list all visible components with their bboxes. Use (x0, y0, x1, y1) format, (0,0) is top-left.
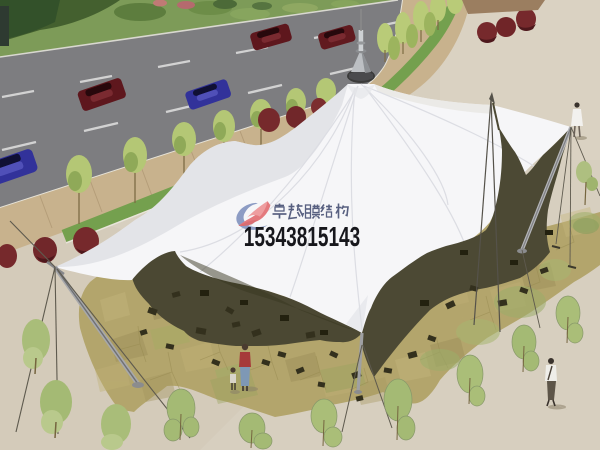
svg-text:15343815143: 15343815143 (244, 221, 360, 253)
